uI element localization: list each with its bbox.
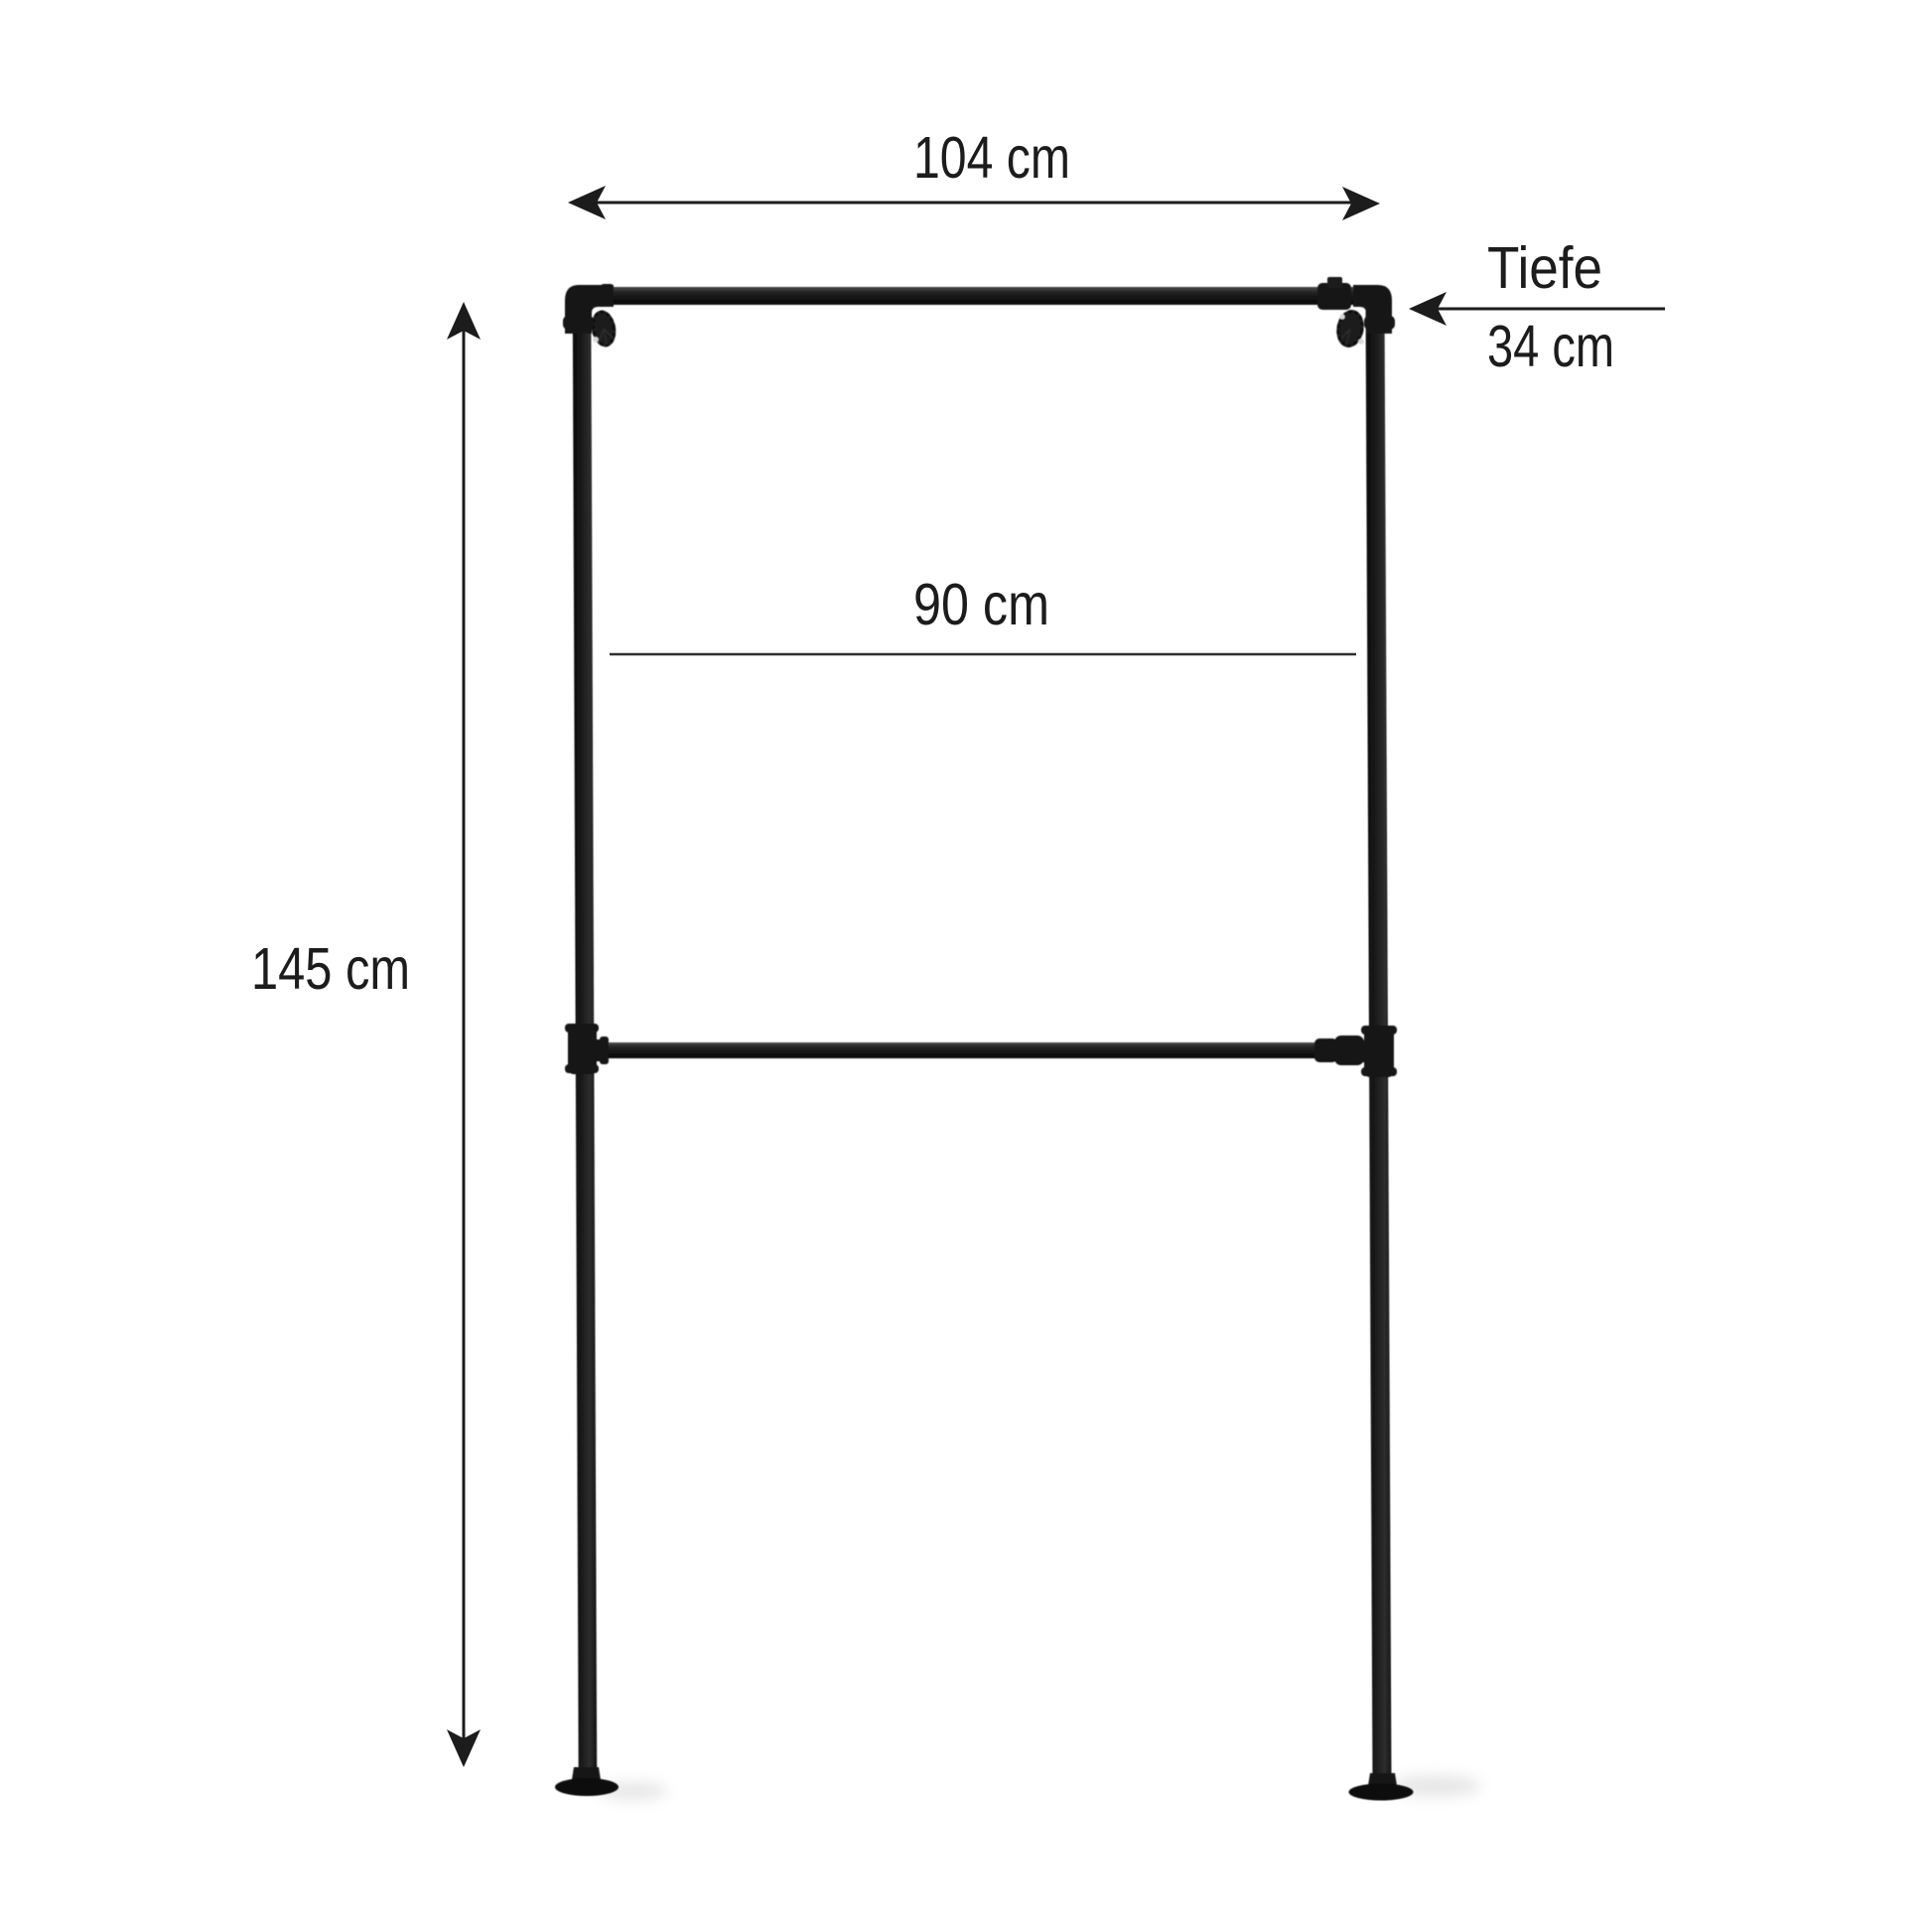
svg-text:145 cm: 145 cm — [251, 936, 410, 1002]
svg-text:Tiefe: Tiefe — [1487, 235, 1602, 301]
svg-text:34 cm: 34 cm — [1487, 314, 1614, 379]
svg-text:90 cm: 90 cm — [913, 572, 1049, 637]
svg-text:104 cm: 104 cm — [913, 125, 1070, 191]
